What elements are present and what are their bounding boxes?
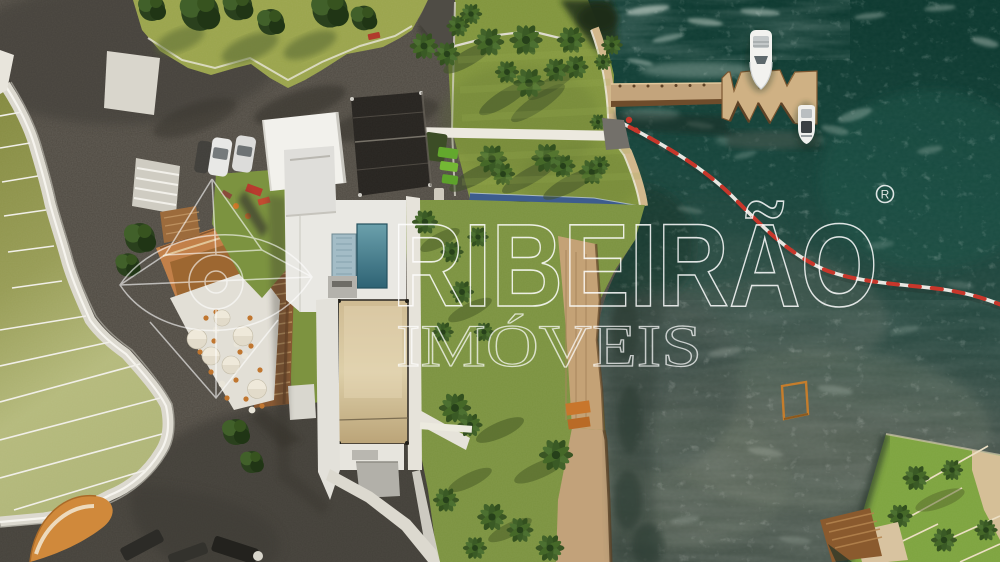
svg-text:R: R xyxy=(881,188,890,202)
svg-text:IMÓVEIS: IMÓVEIS xyxy=(396,313,702,379)
